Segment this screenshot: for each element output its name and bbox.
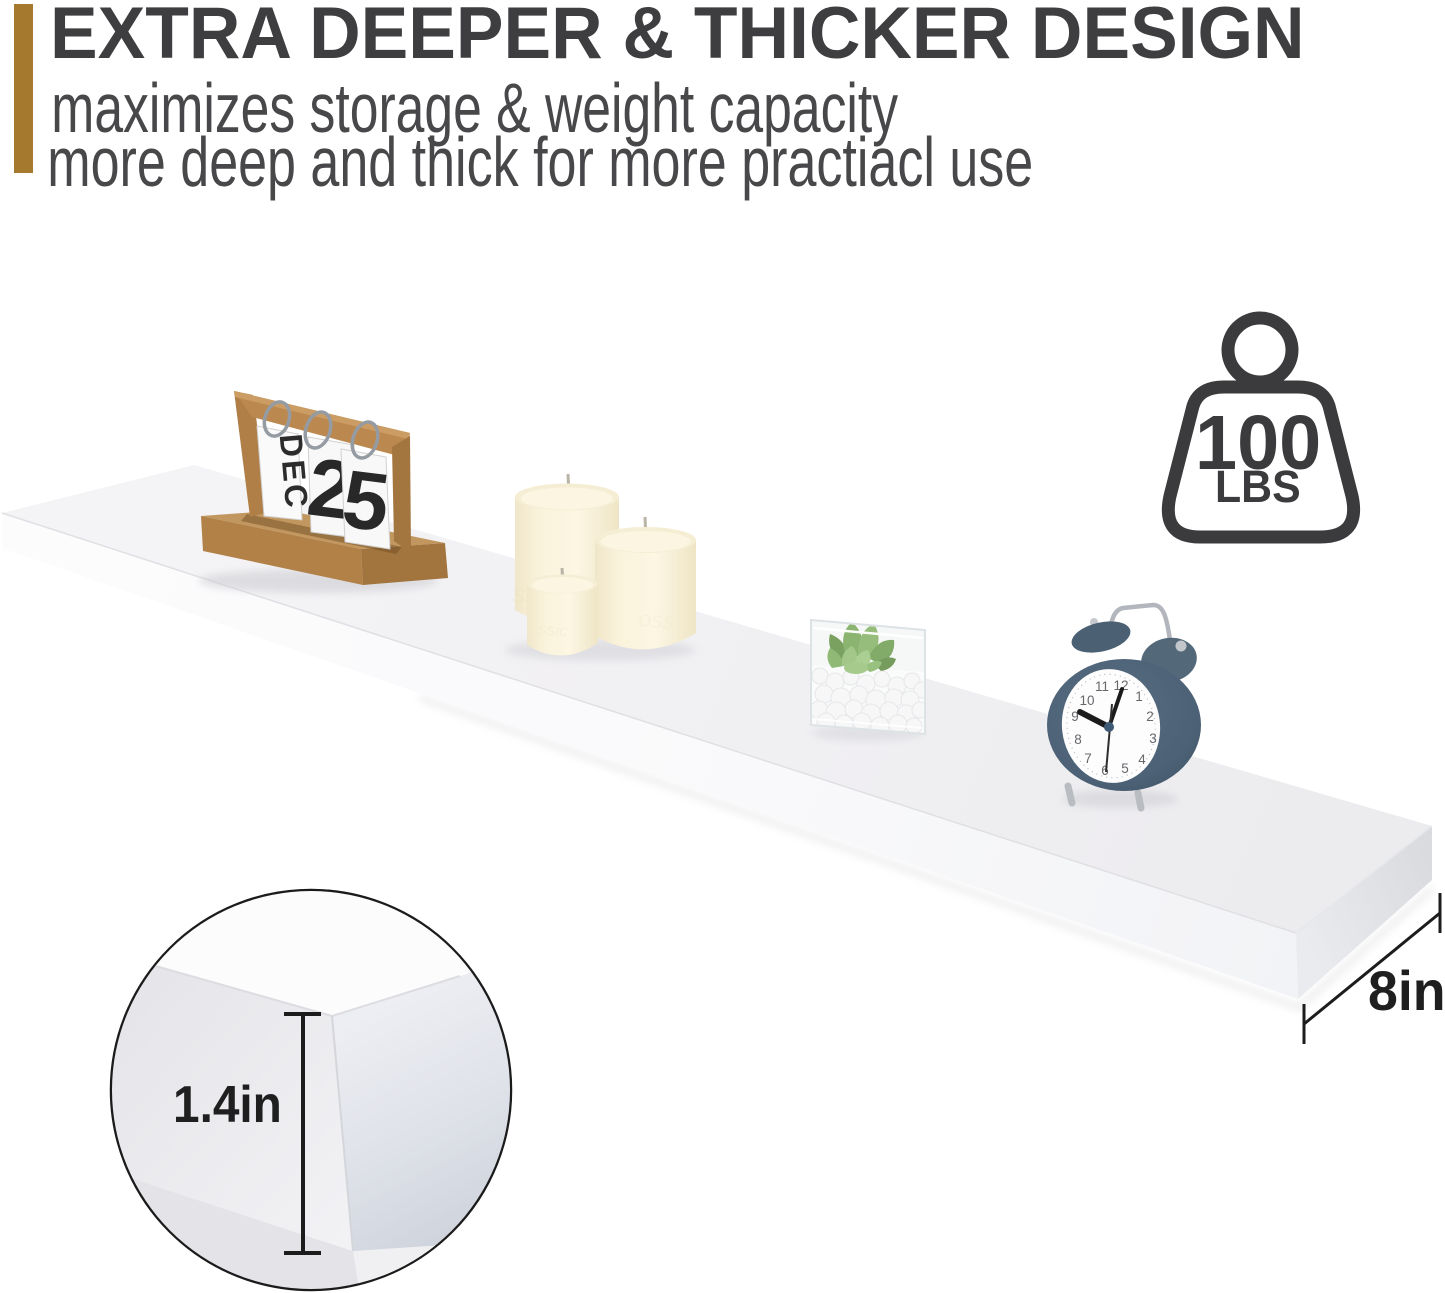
svg-text:1: 1 bbox=[1135, 689, 1143, 704]
svg-text:3: 3 bbox=[1149, 731, 1157, 746]
svg-text:11: 11 bbox=[1095, 679, 1109, 694]
svg-text:8: 8 bbox=[1074, 732, 1082, 747]
svg-text:1.4in: 1.4in bbox=[173, 1075, 282, 1133]
svg-text:more deep and thick for more p: more deep and thick for more practiacl u… bbox=[47, 124, 1033, 202]
svg-text:oss: oss bbox=[638, 605, 676, 634]
svg-text:2: 2 bbox=[1146, 709, 1154, 724]
svg-text:7: 7 bbox=[1084, 751, 1092, 766]
svg-text:4: 4 bbox=[1138, 752, 1146, 767]
svg-text:EXTRA DEEPER & THICKER DESIGN: EXTRA DEEPER & THICKER DESIGN bbox=[50, 0, 1305, 74]
svg-text:10: 10 bbox=[1079, 693, 1094, 708]
svg-text:8in: 8in bbox=[1368, 959, 1445, 1022]
svg-text:LBS: LBS bbox=[1215, 462, 1301, 512]
svg-text:ssic: ssic bbox=[538, 619, 569, 641]
svg-text:6: 6 bbox=[1101, 763, 1109, 778]
svg-text:5: 5 bbox=[1121, 761, 1129, 776]
